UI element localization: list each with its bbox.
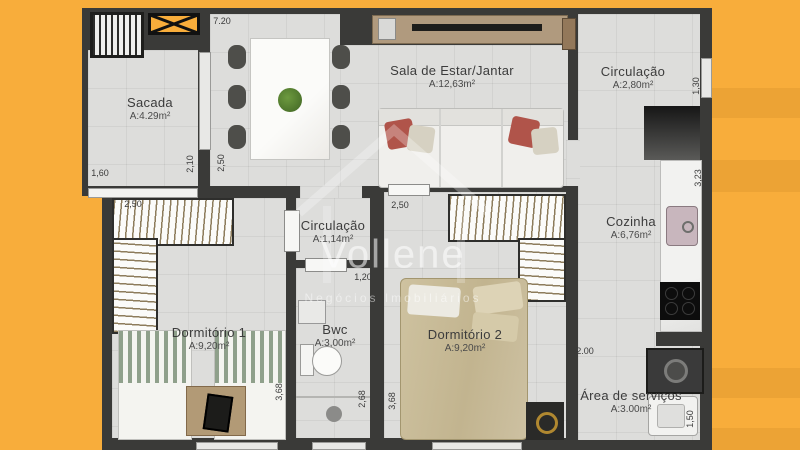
shower-drain-icon bbox=[326, 406, 342, 422]
dimension-label: 2,50 bbox=[216, 154, 226, 172]
background-stripe bbox=[700, 160, 800, 192]
kitchen-sink bbox=[666, 206, 698, 246]
room-label-sala: Sala de Estar/Jantar A:12,63m² bbox=[390, 64, 514, 90]
chair bbox=[332, 85, 350, 109]
floorplan: Vollene Negócios Imobiliários Sacada A:4… bbox=[82, 8, 712, 450]
window bbox=[312, 442, 366, 450]
dimension-label: 1,60 bbox=[91, 168, 109, 178]
window bbox=[432, 442, 522, 450]
window bbox=[701, 58, 712, 98]
balcony-glass-door bbox=[199, 52, 211, 150]
kitchen-passage bbox=[566, 140, 580, 186]
dimension-label: 2,50 bbox=[124, 199, 142, 209]
dimension-label: 1,50 bbox=[685, 410, 695, 428]
dimension-label: 3,23 bbox=[693, 169, 703, 187]
chair bbox=[332, 45, 350, 69]
beige-pillow bbox=[406, 124, 435, 153]
chair bbox=[332, 125, 350, 149]
fridge bbox=[644, 106, 700, 160]
dimension-label: 3,68 bbox=[387, 392, 397, 410]
floorplan-image: Vollene Negócios Imobiliários Sacada A:4… bbox=[0, 0, 800, 450]
window bbox=[196, 442, 278, 450]
room-label-sacada: Sacada A:4.29m² bbox=[127, 96, 173, 122]
stool bbox=[526, 402, 564, 440]
dimension-label: 1,20 bbox=[354, 272, 372, 282]
background-stripe bbox=[700, 88, 800, 118]
balcony-railing bbox=[88, 188, 198, 198]
wardrobe bbox=[448, 194, 566, 242]
background-stripe bbox=[700, 428, 800, 450]
beige-pillow bbox=[531, 127, 560, 156]
building-edge bbox=[82, 196, 102, 450]
wall-stub bbox=[656, 332, 700, 346]
dimension-label: 1,30 bbox=[691, 77, 701, 95]
bathroom-sink bbox=[298, 300, 326, 324]
dormitorio1-door bbox=[284, 210, 300, 252]
dimension-label: 2,10 bbox=[185, 155, 195, 173]
room-label-cozinha: Cozinha A:6,76m² bbox=[606, 215, 656, 241]
ac-condenser-icon bbox=[90, 12, 144, 58]
dimension-label: 2,50 bbox=[391, 200, 409, 210]
wardrobe bbox=[112, 238, 158, 334]
dimension-label: 3,68 bbox=[274, 383, 284, 401]
shaft-x-icon bbox=[148, 13, 200, 35]
cooktop bbox=[660, 282, 700, 320]
bwc-door bbox=[305, 258, 347, 272]
chair bbox=[228, 85, 246, 109]
toilet bbox=[312, 346, 342, 376]
room-label-area-servicos: Área de serviços A:3.00m² bbox=[580, 389, 682, 415]
dormitorio2-door bbox=[388, 184, 430, 196]
entry-door bbox=[562, 18, 576, 50]
pillow bbox=[407, 284, 461, 318]
nightstand bbox=[186, 386, 246, 436]
speaker-icon bbox=[378, 18, 396, 40]
room-label-dormitorio1: Dormitório 1 A:9,20m² bbox=[172, 326, 246, 352]
dimension-label: 2,68 bbox=[357, 390, 367, 408]
dimension-label: 2.00 bbox=[576, 346, 594, 356]
plant-icon bbox=[278, 88, 302, 112]
chair bbox=[228, 125, 246, 149]
background-stripe bbox=[700, 368, 800, 398]
tv-icon bbox=[412, 24, 542, 31]
room-label-bwc: Bwc A:3,00m² bbox=[315, 323, 356, 349]
chair bbox=[228, 45, 246, 69]
room-label-dormitorio2: Dormitório 2 A:9,20m² bbox=[428, 328, 502, 354]
room-label-circulacao-interna: Circulação A:1,14m² bbox=[301, 219, 365, 245]
dimension-label: 7.20 bbox=[213, 16, 231, 26]
room-label-circulacao-entrada: Circulação A:2,80m² bbox=[601, 65, 665, 91]
